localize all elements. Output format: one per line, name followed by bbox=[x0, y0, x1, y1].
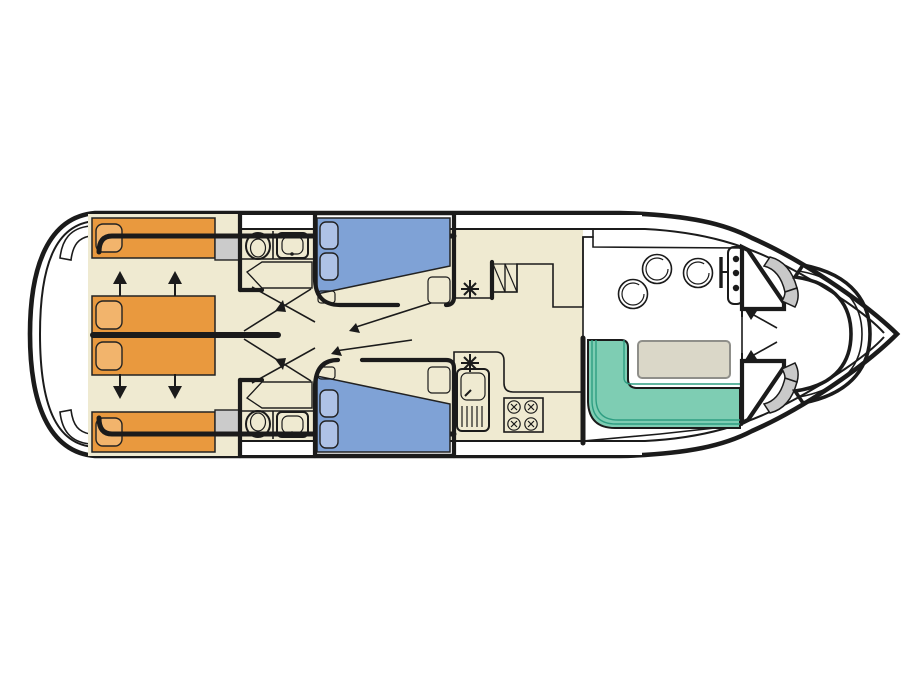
stools bbox=[619, 255, 713, 309]
pillow-blue-bottom-2 bbox=[320, 421, 338, 448]
instrument-light-1 bbox=[733, 256, 739, 262]
windscreen-wedge-bottom bbox=[742, 361, 784, 423]
saloon bbox=[588, 255, 740, 429]
helm-and-bow bbox=[721, 247, 870, 423]
pillow-blue-top-2 bbox=[320, 253, 338, 280]
helm-console bbox=[721, 247, 743, 304]
stool-3 bbox=[684, 259, 713, 288]
bow-step-top-1 bbox=[764, 257, 797, 292]
stern-step-top bbox=[60, 226, 90, 260]
stool-1 bbox=[619, 280, 648, 309]
wardrobe-top bbox=[215, 237, 240, 260]
wardrobe-bottom bbox=[215, 410, 240, 433]
instrument-light-2 bbox=[733, 270, 739, 276]
bow-step-bottom-1 bbox=[764, 378, 797, 413]
boat-floorplan-canvas bbox=[0, 0, 915, 686]
stern-step-bottom bbox=[60, 410, 90, 444]
stool-2 bbox=[643, 255, 672, 284]
stern-inner-line bbox=[40, 221, 95, 447]
entry-arrow-bottom bbox=[745, 342, 777, 360]
instrument-light-3 bbox=[733, 285, 739, 291]
pillow-blue-bottom-1 bbox=[320, 390, 338, 417]
entry-arrow-top bbox=[745, 310, 777, 328]
saloon-table bbox=[638, 341, 730, 378]
deck-band-bottom-bathroom bbox=[240, 441, 317, 455]
aft-pillow-3 bbox=[96, 342, 122, 370]
floor-corridor bbox=[454, 229, 583, 441]
pillow-blue-top-1 bbox=[320, 222, 338, 249]
floorplan-svg bbox=[0, 0, 915, 686]
aft-pillow-2 bbox=[96, 301, 122, 329]
deck-band-top-galley bbox=[454, 215, 642, 229]
deck-band-top-bathroom bbox=[240, 215, 317, 229]
windscreen-wedge-top bbox=[742, 247, 784, 309]
deck-band-bottom-galley bbox=[454, 441, 642, 455]
